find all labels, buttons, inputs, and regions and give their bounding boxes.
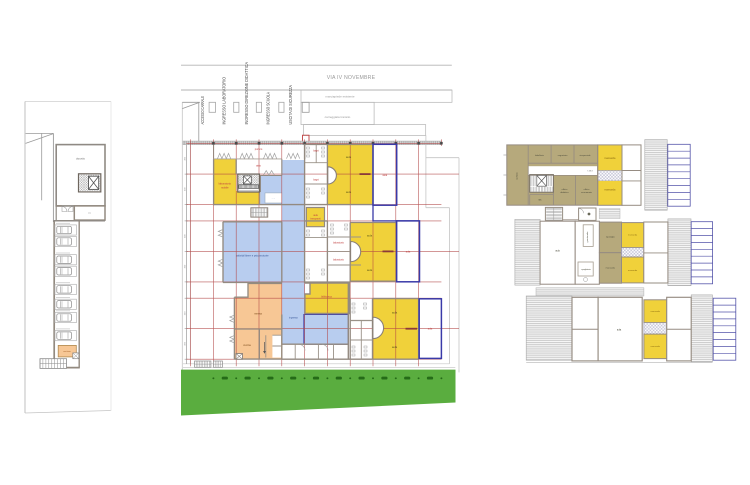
svg-text:VIA IV NOVEMBRE: VIA IV NOVEMBRE xyxy=(327,75,376,81)
svg-text:ingresso: ingresso xyxy=(289,317,298,320)
svg-text:mansarda: mansarda xyxy=(604,157,616,160)
svg-text:mansarda: mansarda xyxy=(604,188,616,191)
svg-text:carreggiata transito: carreggiata transito xyxy=(325,115,351,119)
svg-text:laboratorio: laboratorio xyxy=(333,242,345,245)
svg-text:·····: ····· xyxy=(272,198,276,200)
svg-text:USCITA DI SICUREZZA: USCITA DI SICUREZZA xyxy=(288,85,293,125)
svg-text:aula: aula xyxy=(346,190,352,194)
svg-text:vicepreside: vicepreside xyxy=(579,154,591,157)
svg-text:ripostiglio: ripostiglio xyxy=(606,236,616,239)
svg-text:laboratorio: laboratorio xyxy=(219,182,232,186)
svg-text:economato: economato xyxy=(581,191,593,194)
svg-text:aula: aula xyxy=(367,268,373,272)
svg-text:mansarda: mansarda xyxy=(606,267,616,270)
svg-text:mansarda: mansarda xyxy=(651,345,661,348)
svg-text:biblioteca: biblioteca xyxy=(321,296,332,299)
svg-text:ufficio: ufficio xyxy=(584,189,590,191)
svg-text:aula: aula xyxy=(313,215,318,217)
svg-text:marciapiede esistente: marciapiede esistente xyxy=(325,95,355,99)
svg-text:mensa: mensa xyxy=(254,313,262,316)
svg-text:aula: aula xyxy=(428,328,433,331)
svg-text:cent.term.: cent.term. xyxy=(63,350,71,353)
svg-text:mansarda: mansarda xyxy=(628,234,638,237)
svg-text:mansarda: mansarda xyxy=(628,269,638,272)
svg-text:attività libere e psicomotorie: attività libere e psicomotorie xyxy=(236,253,269,257)
svg-text:aula: aula xyxy=(406,250,411,253)
svg-text:aula: aula xyxy=(383,174,388,177)
svg-text:ACCESSO CARRALE: ACCESSO CARRALE xyxy=(200,96,205,125)
svg-text:INGRESSO SCUOLA: INGRESSO SCUOLA xyxy=(266,92,271,125)
svg-text:segreteria: segreteria xyxy=(558,154,569,157)
svg-text:portico: portico xyxy=(255,148,263,151)
svg-text:mansarda: mansarda xyxy=(651,310,661,313)
svg-text:insegnanti: insegnanti xyxy=(310,217,321,220)
svg-text:ufficio: ufficio xyxy=(562,189,568,191)
svg-text:didattico: didattico xyxy=(560,191,569,194)
svg-text:mobile: mobile xyxy=(221,185,229,189)
svg-text:archivio: archivio xyxy=(516,171,519,179)
svg-text:atrio: atrio xyxy=(256,165,261,168)
svg-text:aula: aula xyxy=(367,234,373,238)
svg-text:cucina: cucina xyxy=(243,343,251,347)
svg-text:deposito: deposito xyxy=(76,157,86,160)
svg-text:spogliatoio: spogliatoio xyxy=(581,268,591,271)
svg-text:laboratorio: laboratorio xyxy=(333,259,345,262)
svg-text:bagni: bagni xyxy=(313,151,319,153)
svg-text:INGRESSO DIREZIONE DIDATTICA: INGRESSO DIREZIONE DIDATTICA xyxy=(244,62,249,125)
svg-text:guardaroba: guardaroba xyxy=(586,231,589,242)
svg-text:aula: aula xyxy=(555,251,560,253)
svg-text:bidelleria: bidelleria xyxy=(535,154,545,157)
svg-text:aula: aula xyxy=(392,311,398,315)
svg-text:bagni: bagni xyxy=(313,180,319,182)
svg-text:INGRESSO LABORATORIO: INGRESSO LABORATORIO xyxy=(222,76,227,124)
svg-text:aula: aula xyxy=(617,329,622,331)
svg-text:h 38.8: h 38.8 xyxy=(587,171,593,173)
svg-text:aula: aula xyxy=(346,155,352,159)
svg-text:aula: aula xyxy=(392,345,398,349)
